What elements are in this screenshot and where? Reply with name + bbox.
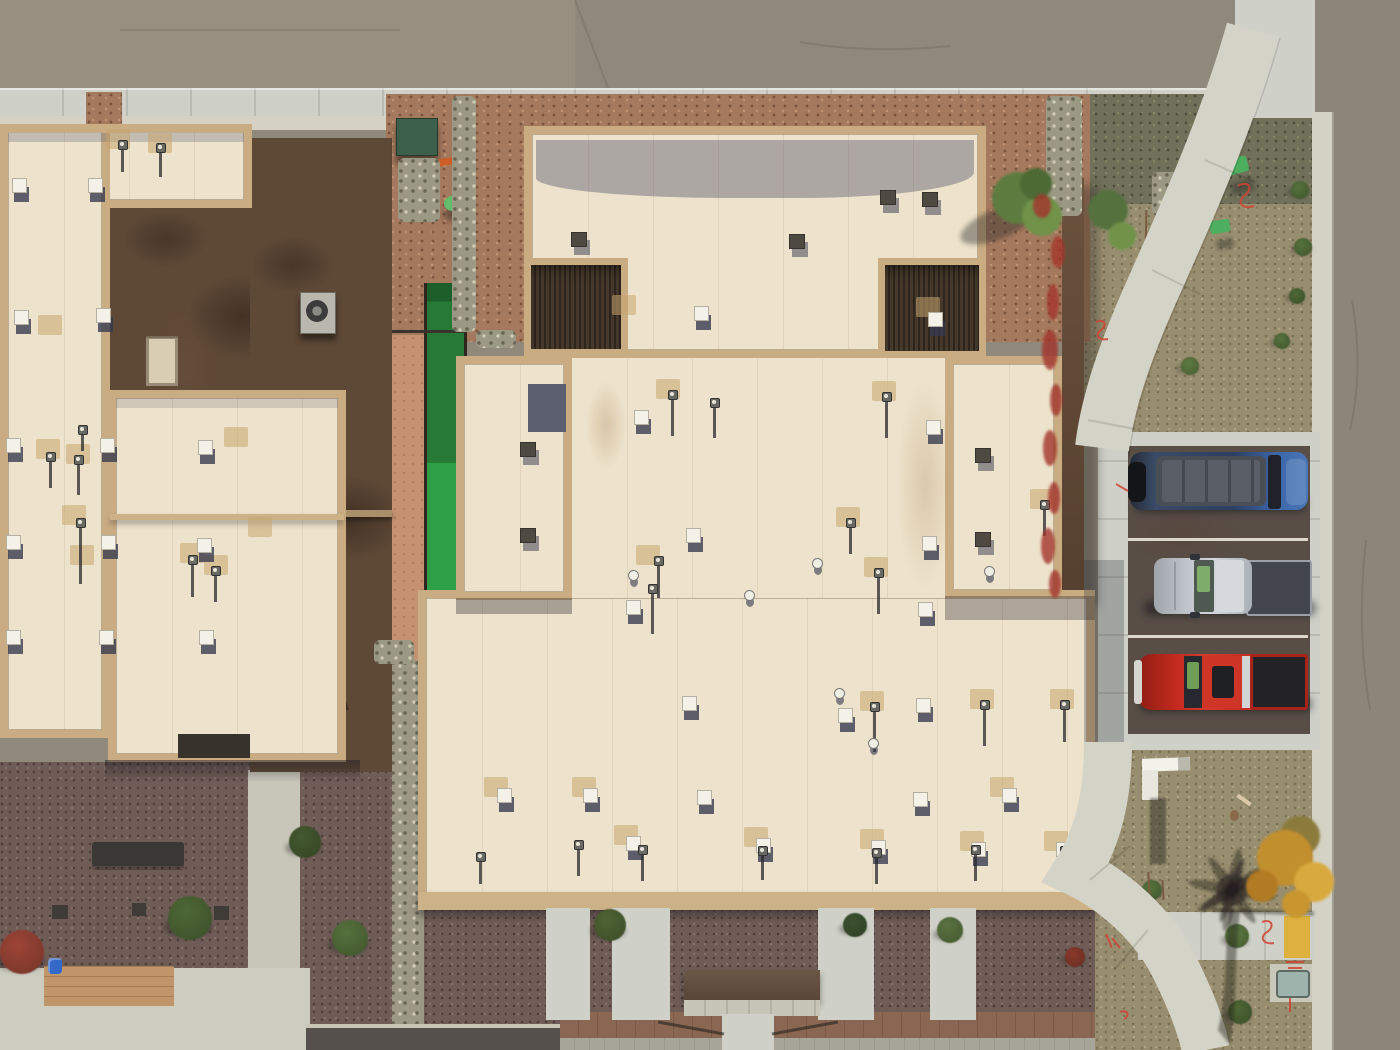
truck-sunroof (1212, 666, 1234, 698)
truck-bed-open (1250, 654, 1308, 710)
van-glint (1286, 459, 1306, 505)
van-spare-tire (1128, 462, 1146, 502)
truck-windshield-glint (1197, 566, 1210, 592)
truck-hood-line (1174, 562, 1176, 610)
vehicle-silver-truck (1138, 554, 1322, 618)
truck-bumper (1134, 660, 1142, 704)
truck-mirror-bottom (1190, 612, 1200, 618)
truck-mirror-top (1190, 554, 1200, 560)
truck-chrome-strip (1242, 656, 1250, 708)
truck-windshield-glint (1187, 662, 1199, 689)
van-roof-rack (1162, 460, 1260, 502)
vehicle-red-truck (1134, 650, 1318, 714)
van-windshield (1268, 455, 1281, 509)
truck-bed-cover (1246, 560, 1312, 616)
vehicle-blue-van (1128, 450, 1312, 514)
truck-roof (1216, 560, 1244, 612)
aerial-photo-scene (0, 0, 1400, 1050)
parked-vehicles (0, 0, 1400, 1050)
